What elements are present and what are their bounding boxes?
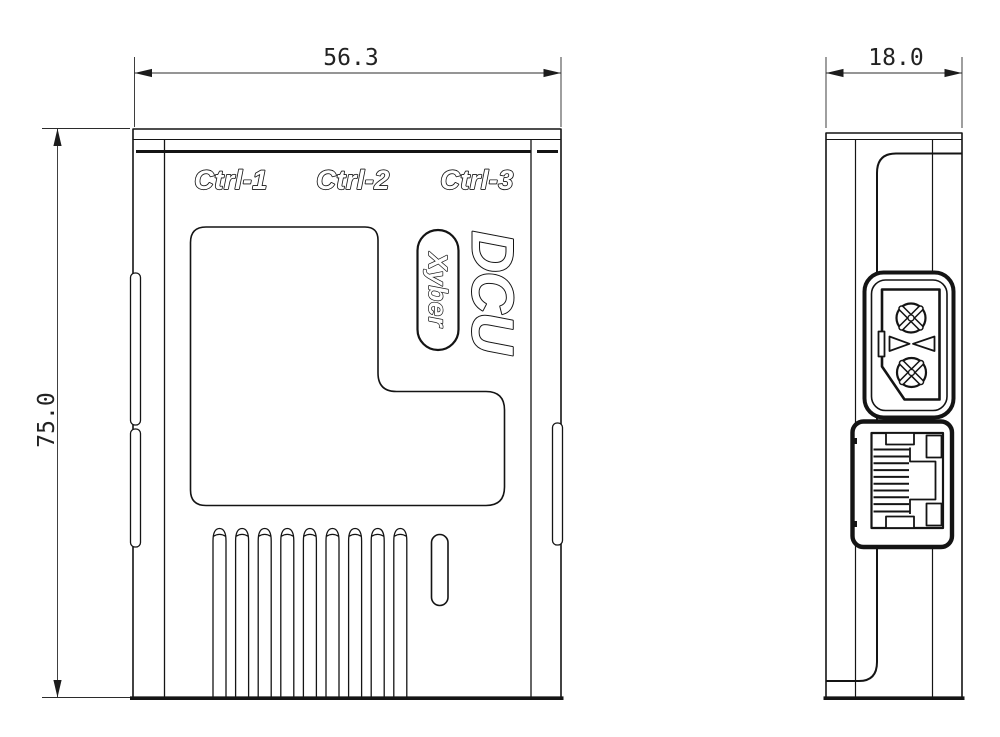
xt30-pin-center — [909, 370, 915, 376]
xt30-power-connector — [865, 273, 954, 418]
dim-width: 56.3 — [135, 45, 562, 127]
dim-depth-arrow-right — [945, 69, 963, 77]
port-label-ctrl2: Ctrl-2 — [316, 165, 390, 195]
dim-height: 75.0 — [34, 129, 130, 698]
brand-name-text: Xyber — [423, 251, 453, 329]
port-label-ctrl1: Ctrl-1 — [194, 165, 268, 195]
mounting-pad-left-upper — [131, 273, 141, 425]
dim-height-arrow-top — [53, 129, 61, 147]
dim-depth: 18.0 — [826, 45, 962, 128]
rj45-bottom-tab — [886, 517, 914, 529]
rj45-cutout-bottom — [927, 504, 942, 526]
mounting-pad-right — [553, 423, 563, 545]
technical-drawing-canvas: Ctrl-1 Ctrl-2 Ctrl-3 DCU Xyber — [0, 0, 1000, 737]
rj45-top-tab — [886, 433, 914, 445]
dim-width-arrow-right — [544, 69, 562, 77]
dim-height-arrow-bottom — [53, 680, 61, 698]
rj45-side-nub — [854, 438, 858, 444]
front-view: Ctrl-1 Ctrl-2 Ctrl-3 DCU Xyber — [130, 129, 564, 698]
dim-width-arrow-left — [135, 69, 153, 77]
rj45-side-nub — [854, 521, 858, 527]
dim-depth-value: 18.0 — [868, 45, 923, 71]
xt30-key-tab — [879, 332, 885, 357]
xt30-pin-center — [908, 315, 914, 321]
front-body-outline — [133, 129, 561, 698]
rj45-ethernet-port — [853, 422, 953, 548]
port-label-ctrl3: Ctrl-3 — [440, 165, 514, 195]
rj45-cutout-top — [927, 436, 942, 458]
port-labels: Ctrl-1 Ctrl-2 Ctrl-3 — [194, 165, 514, 195]
dim-depth-arrow-left — [826, 69, 844, 77]
mounting-pad-left-lower — [131, 429, 141, 547]
side-view — [824, 133, 965, 698]
model-name-text: DCU — [460, 231, 525, 357]
dim-width-value: 56.3 — [323, 45, 378, 71]
xt30-pin-positive — [897, 304, 926, 333]
dcu-dimension-drawing: Ctrl-1 Ctrl-2 Ctrl-3 DCU Xyber — [0, 0, 1000, 737]
dim-height-value: 75.0 — [34, 392, 60, 447]
xt30-pin-negative — [897, 358, 926, 387]
